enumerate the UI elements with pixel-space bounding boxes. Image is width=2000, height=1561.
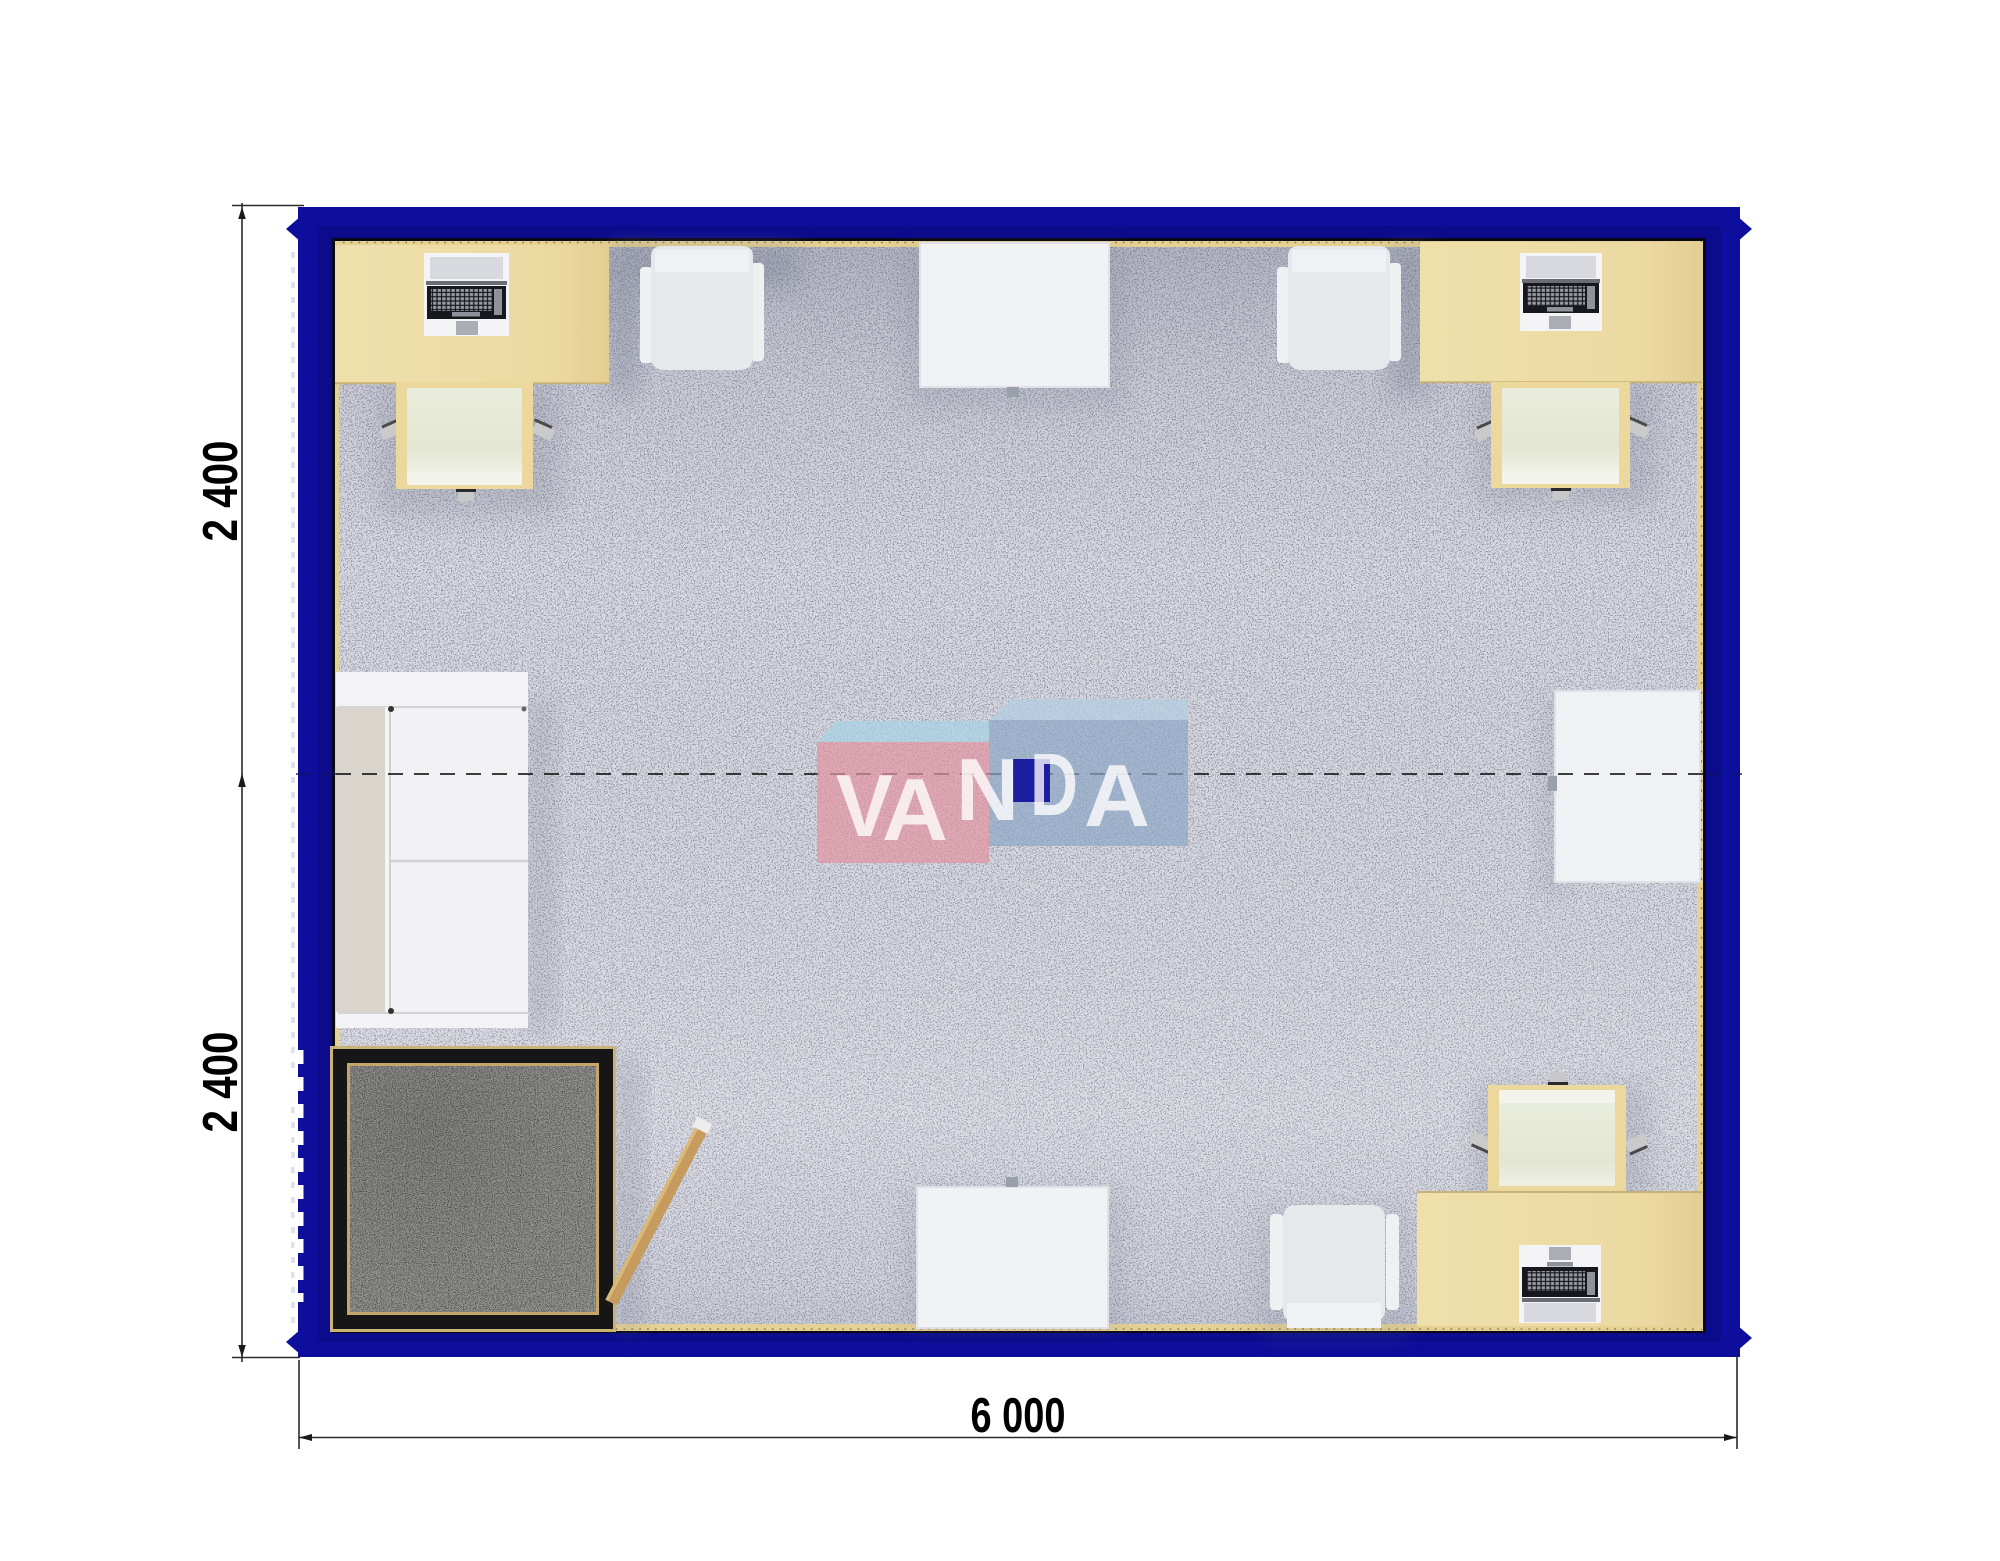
svg-text:2 400: 2 400: [194, 441, 248, 542]
svg-text:2 400: 2 400: [194, 1032, 248, 1133]
svg-text:6 000: 6 000: [971, 1389, 1066, 1443]
svg-text:N: N: [956, 740, 1019, 839]
svg-text:D: D: [1030, 735, 1078, 834]
svg-text:A: A: [882, 760, 948, 859]
svg-text:A: A: [1084, 746, 1150, 845]
